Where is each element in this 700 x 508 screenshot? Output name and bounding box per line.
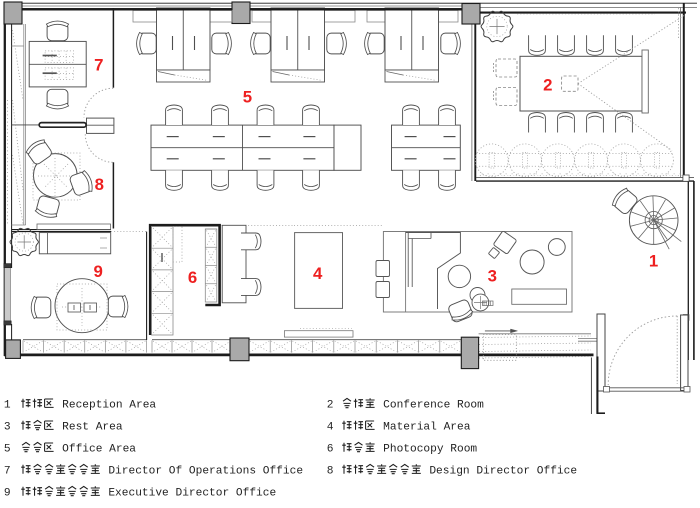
svg-text:8: 8 xyxy=(327,466,334,478)
svg-text:1: 1 xyxy=(4,400,11,412)
svg-text:Reception Area: Reception Area xyxy=(62,400,156,412)
svg-text:Material Area: Material Area xyxy=(383,422,471,434)
svg-text:6: 6 xyxy=(327,444,334,456)
svg-text:Rest Area: Rest Area xyxy=(62,422,123,434)
svg-text:3: 3 xyxy=(488,267,497,286)
svg-text:5: 5 xyxy=(243,88,252,107)
svg-text:2: 2 xyxy=(327,400,334,412)
svg-text:7: 7 xyxy=(4,466,11,478)
svg-text:Director Of Operations Office: Director Of Operations Office xyxy=(108,466,303,478)
svg-text:9: 9 xyxy=(4,488,11,500)
svg-text:7: 7 xyxy=(94,56,103,75)
svg-text:6: 6 xyxy=(188,268,197,287)
svg-text:5: 5 xyxy=(4,444,11,456)
svg-text:Design Director Office: Design Director Office xyxy=(429,466,577,478)
svg-text:4: 4 xyxy=(327,422,334,434)
svg-text:Photocopy Room: Photocopy Room xyxy=(383,444,477,456)
svg-text:Conference Room: Conference Room xyxy=(383,400,484,412)
svg-text:1: 1 xyxy=(649,251,658,270)
svg-text:8: 8 xyxy=(95,175,104,194)
svg-text:2: 2 xyxy=(543,75,552,94)
svg-text:9: 9 xyxy=(94,262,103,281)
svg-text:3: 3 xyxy=(4,422,11,434)
svg-text:4: 4 xyxy=(313,264,323,283)
svg-text:Executive Director Office: Executive Director Office xyxy=(108,488,276,500)
svg-text:Office Area: Office Area xyxy=(62,444,136,456)
